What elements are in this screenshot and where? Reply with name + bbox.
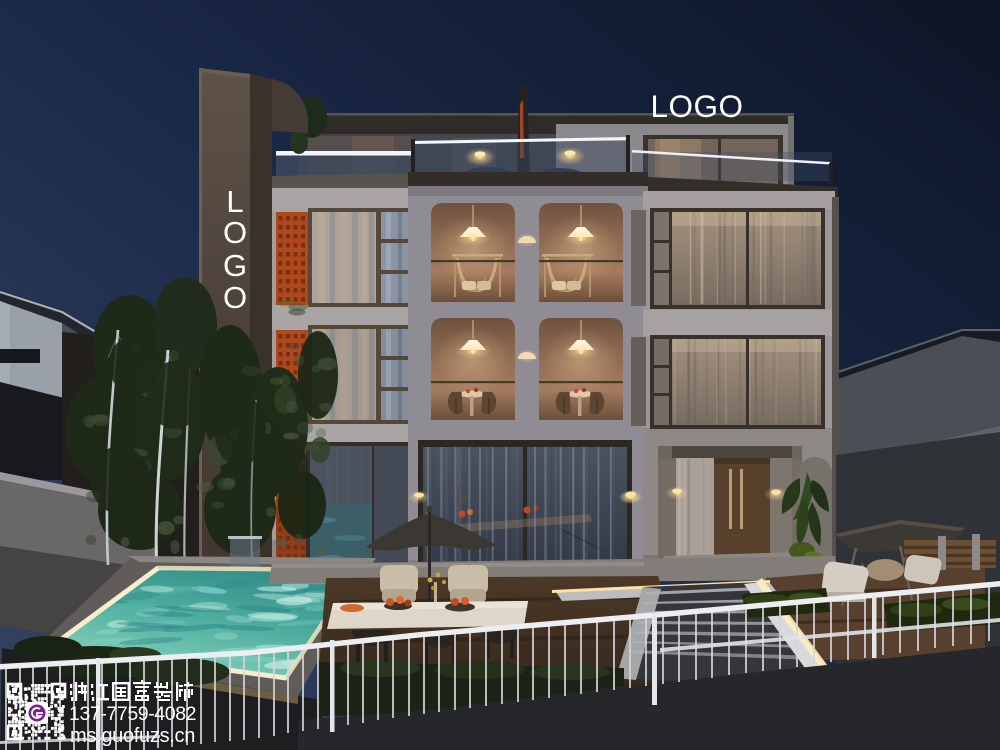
svg-text:O: O: [223, 215, 247, 250]
svg-text:ms.guofuzs.cn: ms.guofuzs.cn: [70, 725, 195, 747]
svg-text:LOGO: LOGO: [650, 88, 743, 124]
svg-text:137-7759-4082: 137-7759-4082: [69, 703, 196, 725]
svg-text:G: G: [223, 248, 247, 283]
svg-text:O: O: [223, 280, 247, 315]
svg-text:L: L: [226, 184, 243, 219]
